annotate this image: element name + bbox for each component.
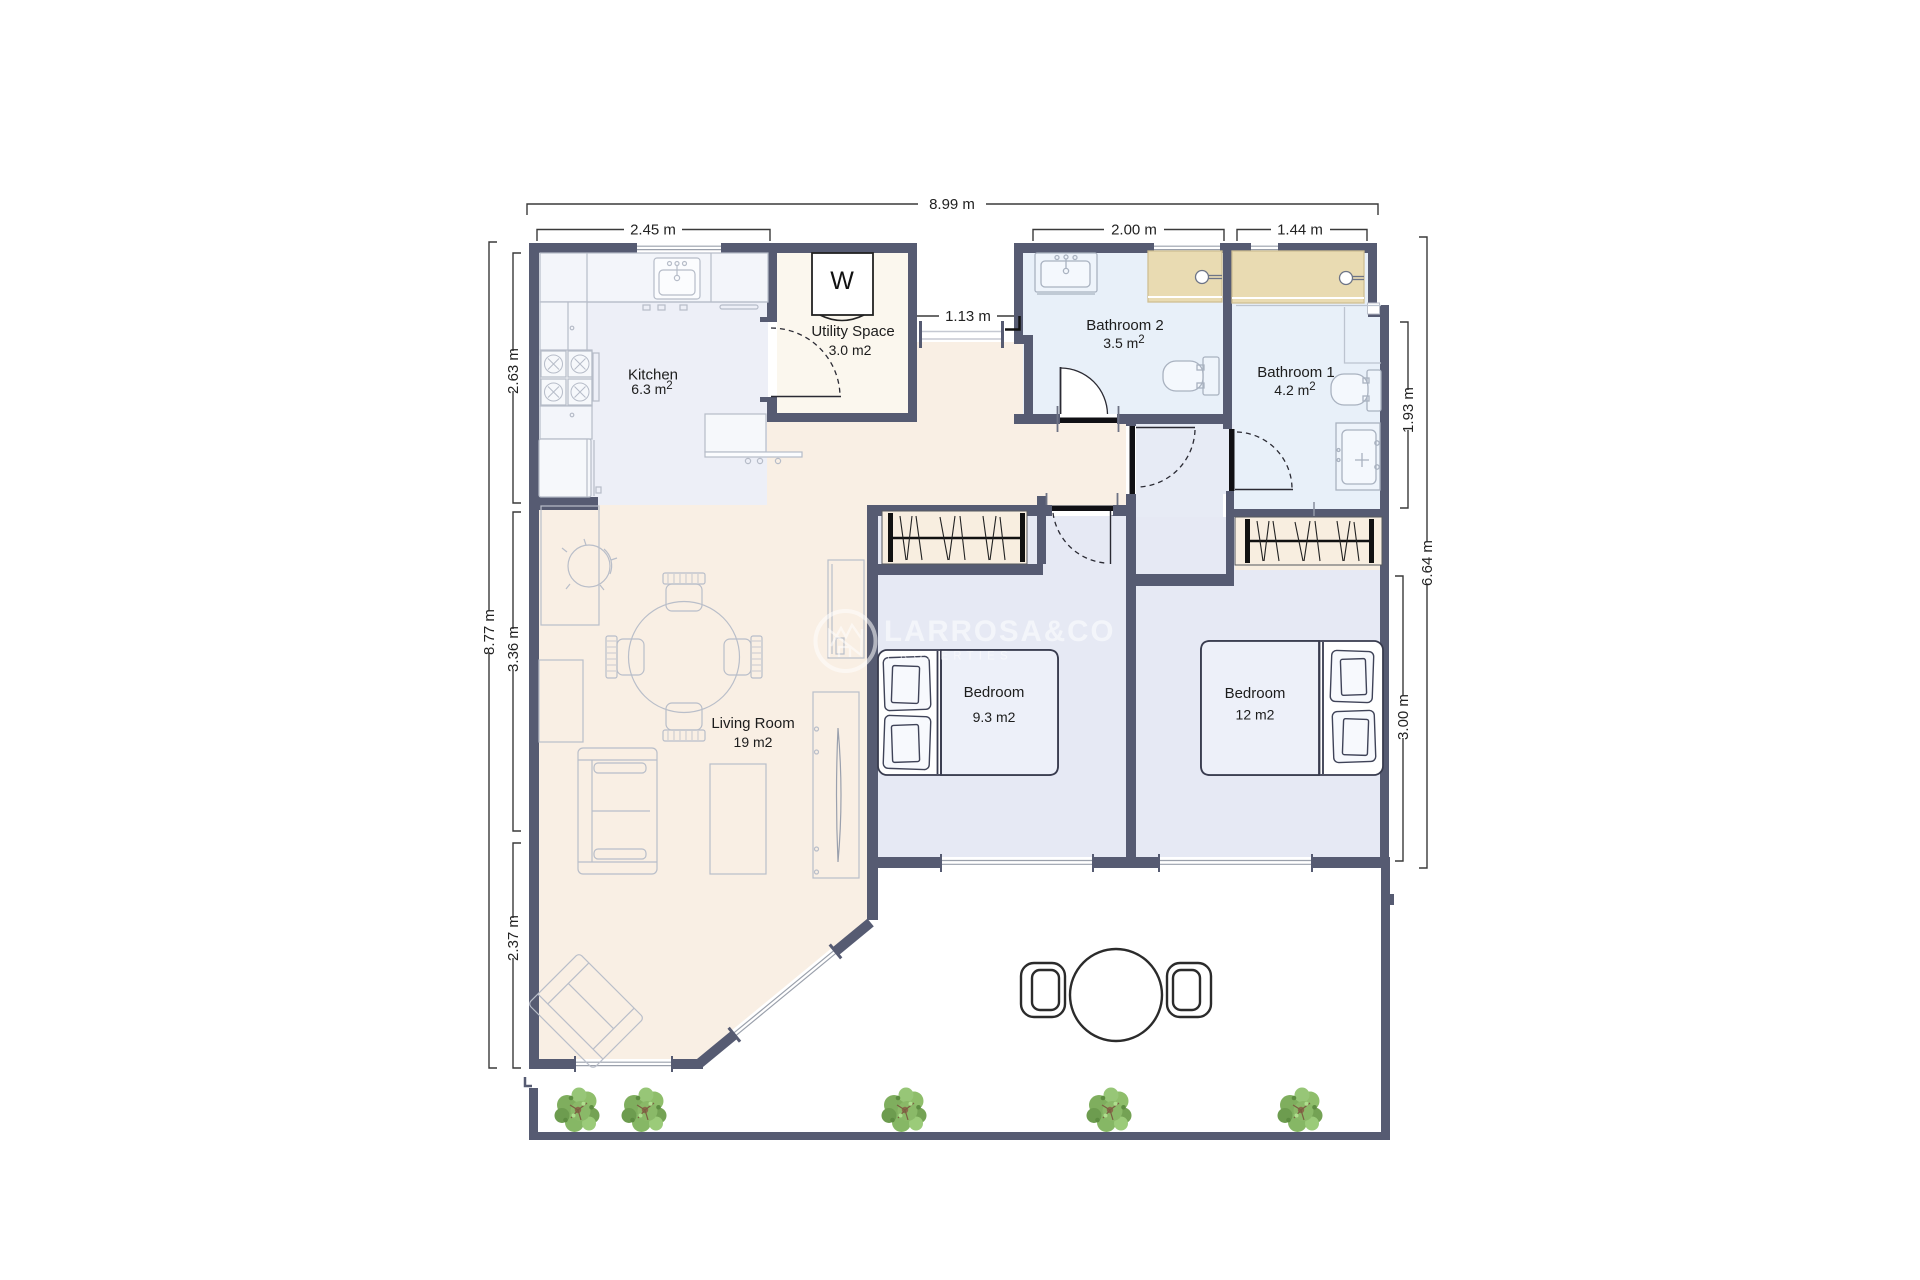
svg-text:8.99 m: 8.99 m (929, 196, 975, 213)
svg-text:6.64 m: 6.64 m (1419, 540, 1436, 586)
svg-text:PROPERTIES: PROPERTIES (887, 651, 1013, 663)
svg-text:19 m2: 19 m2 (734, 734, 773, 750)
svg-text:Bedroom: Bedroom (1225, 685, 1286, 702)
svg-text:3.36 m: 3.36 m (505, 626, 522, 672)
svg-text:8.77 m: 8.77 m (481, 609, 498, 655)
svg-text:1.93 m: 1.93 m (1400, 387, 1417, 433)
svg-text:W: W (830, 267, 854, 295)
svg-text:1.44 m: 1.44 m (1277, 222, 1323, 239)
svg-text:Utility Space: Utility Space (811, 323, 894, 340)
svg-text:2.63 m: 2.63 m (505, 348, 522, 394)
svg-text:Bathroom 2: Bathroom 2 (1086, 317, 1164, 334)
svg-text:9.3 m2: 9.3 m2 (973, 709, 1016, 725)
svg-text:2.00 m: 2.00 m (1111, 222, 1157, 239)
svg-text:Bedroom: Bedroom (964, 684, 1025, 701)
svg-text:Living Room: Living Room (711, 715, 794, 732)
svg-text:2.45 m: 2.45 m (630, 222, 676, 239)
svg-text:3.00 m: 3.00 m (1395, 694, 1412, 740)
svg-text:1.13 m: 1.13 m (945, 308, 991, 325)
svg-text:12 m2: 12 m2 (1236, 707, 1275, 723)
svg-text:Bathroom 1: Bathroom 1 (1257, 364, 1335, 381)
svg-text:2.37 m: 2.37 m (505, 915, 522, 961)
svg-text:3.0 m2: 3.0 m2 (829, 342, 872, 358)
svg-text:LARROSA&CO: LARROSA&CO (884, 615, 1115, 648)
